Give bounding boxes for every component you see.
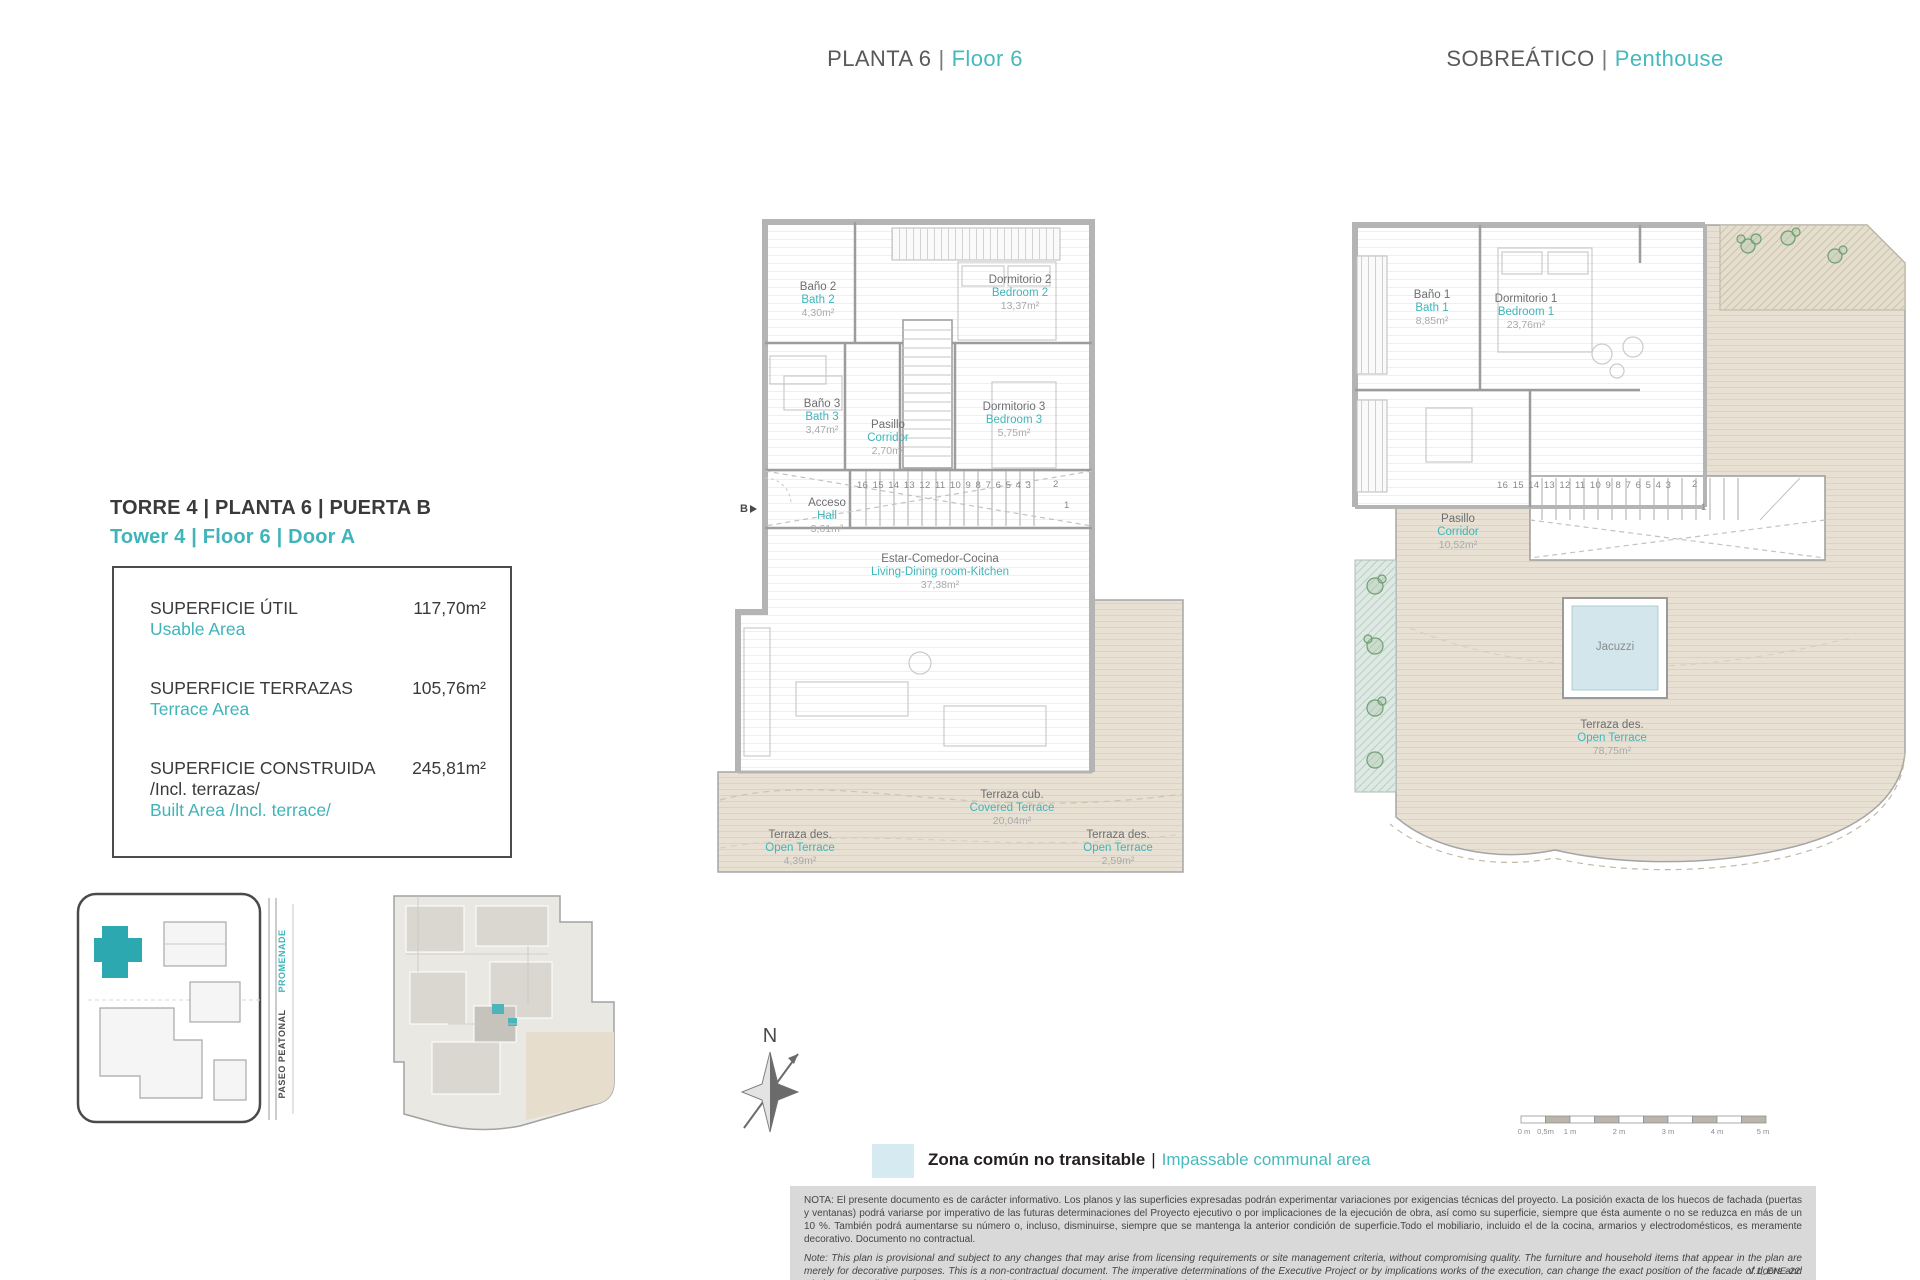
usable-area-value: 117,70m² — [413, 598, 486, 619]
room-label-bath1: Baño 1 Bath 1 8,85m² — [1414, 289, 1450, 328]
impassable-zone-top — [1720, 225, 1905, 310]
room-label-hall: Acceso Hall 3,61m² — [808, 497, 846, 536]
built-area-row: SUPERFICIE CONSTRUIDA 245,81m² /Incl. te… — [150, 758, 486, 821]
legend-label-es: Zona común no transitable — [928, 1150, 1145, 1169]
room-label-bedroom2: Dormitorio 2 Bedroom 2 13,37m² — [989, 274, 1052, 313]
room-label-bath3: Baño 3 Bath 3 3,47m² — [804, 398, 840, 437]
legend-label-en: Impassable communal area — [1162, 1150, 1371, 1169]
built-area-label-en: Built Area /Incl. terrace/ — [150, 800, 486, 821]
floor6-stair-numbers: 16 15 14 13 12 11 10 9 8 7 6 5 4 3 — [857, 480, 1031, 491]
impassable-zone-swatch — [872, 1144, 914, 1178]
floor6-stair-1: 1 — [1064, 500, 1069, 511]
floor6-title-es: PLANTA 6 — [827, 46, 931, 71]
scale-tick-3: 3 m — [1662, 1127, 1675, 1136]
scale-bar: 0 m 0,5m 1 m 2 m 3 m 4 m 5 m — [1518, 1112, 1770, 1140]
floor6-plan-drawing — [700, 208, 1200, 888]
note-english: Note: This plan is provisional and subje… — [804, 1252, 1802, 1280]
room-label-bedroom3: Dormitorio 3 Bedroom 3 5,75m² — [983, 401, 1046, 440]
penthouse-title-en: Penthouse — [1615, 46, 1724, 71]
note-spanish: NOTA: El presente documento es de caráct… — [804, 1194, 1802, 1246]
floor6-stair-2: 2 — [1053, 479, 1058, 490]
room-label-living: Estar-Comedor-Cocina Living-Dining room-… — [871, 553, 1009, 592]
built-area-value: 245,81m² — [412, 758, 486, 779]
jacuzzi-label: Jacuzzi — [1596, 641, 1634, 653]
floor6-title: PLANTA 6|Floor 6 — [760, 46, 1090, 72]
penthouse-stair-numbers: 16 15 14 13 12 11 10 9 8 7 6 5 4 3 — [1497, 480, 1671, 491]
plan-sheet: PLANTA 6|Floor 6 SOBREÁTICO|Penthouse TO… — [0, 0, 1920, 1280]
room-label-corridor-ph: Pasillo Corridor 10,52m² — [1437, 513, 1479, 552]
usable-area-row: SUPERFICIE ÚTIL 117,70m² Usable Area — [150, 598, 486, 640]
scale-tick-4: 4 m — [1711, 1127, 1724, 1136]
room-label-open-terrace-ph: Terraza des. Open Terrace 78,75m² — [1577, 719, 1646, 758]
terrace-area-row: SUPERFICIE TERRAZAS 105,76m² Terrace Are… — [150, 678, 486, 720]
penthouse-title: SOBREÁTICO|Penthouse — [1415, 46, 1755, 72]
usable-area-label-en: Usable Area — [150, 619, 486, 640]
penthouse-stair-2: 2 — [1692, 479, 1697, 490]
plan-version: V.1_ENE-22 — [1748, 1266, 1800, 1277]
paseo-peatonal-label: PASEO PEATONAL — [277, 1009, 287, 1098]
built-area-label-es2: /Incl. terrazas/ — [150, 779, 486, 800]
floorplate-key-plan — [378, 884, 628, 1136]
promenade-label: PROMENADE — [277, 929, 287, 992]
entry-marker: B — [740, 503, 757, 515]
area-info-box: SUPERFICIE ÚTIL 117,70m² Usable Area SUP… — [112, 566, 512, 858]
room-label-bedroom1: Dormitorio 1 Bedroom 1 23,76m² — [1495, 293, 1558, 332]
room-label-covered-terrace: Terraza cub. Covered Terrace 20,04m² — [970, 789, 1055, 828]
penthouse-stair-1: 1 — [1701, 502, 1706, 513]
entry-arrow-icon — [750, 505, 757, 513]
unit-title-en: Tower 4 | Floor 6 | Door A — [110, 526, 355, 549]
legend: Zona común no transitable|Impassable com… — [928, 1150, 1371, 1170]
disclaimer-note: NOTA: El presente documento es de caráct… — [790, 1186, 1816, 1280]
penthouse-title-es: SOBREÁTICO — [1446, 46, 1594, 71]
scale-tick-0: 0 m — [1518, 1127, 1530, 1136]
scale-tick-2: 2 m — [1613, 1127, 1626, 1136]
room-label-bath2: Baño 2 Bath 2 4,30m² — [800, 281, 836, 320]
room-label-open-terrace-2: Terraza des. Open Terrace 2,59m² — [1083, 829, 1152, 868]
scale-tick-05: 0,5m — [1537, 1127, 1554, 1136]
site-location-plan: PROMENADE PASEO PEATONAL — [72, 884, 304, 1134]
terrace-area-label-en: Terrace Area — [150, 699, 486, 720]
title-separator: | — [938, 46, 944, 71]
compass-icon: N — [728, 1024, 813, 1142]
wardrobe-hatch — [892, 228, 1060, 260]
unit-title-es: TORRE 4 | PLANTA 6 | PUERTA B — [110, 497, 431, 520]
scale-tick-5: 5 m — [1757, 1127, 1770, 1136]
scale-tick-1: 1 m — [1564, 1127, 1577, 1136]
room-label-corridor-f6: Pasillo Corridor 2,70m² — [867, 419, 909, 458]
compass-north-label: N — [763, 1025, 777, 1047]
internal-stair-shaft — [903, 320, 952, 468]
room-label-open-terrace-1: Terraza des. Open Terrace 4,39m² — [765, 829, 834, 868]
floor6-title-en: Floor 6 — [952, 46, 1023, 71]
terrace-area-value: 105,76m² — [412, 678, 486, 699]
title-separator: | — [1602, 46, 1608, 71]
